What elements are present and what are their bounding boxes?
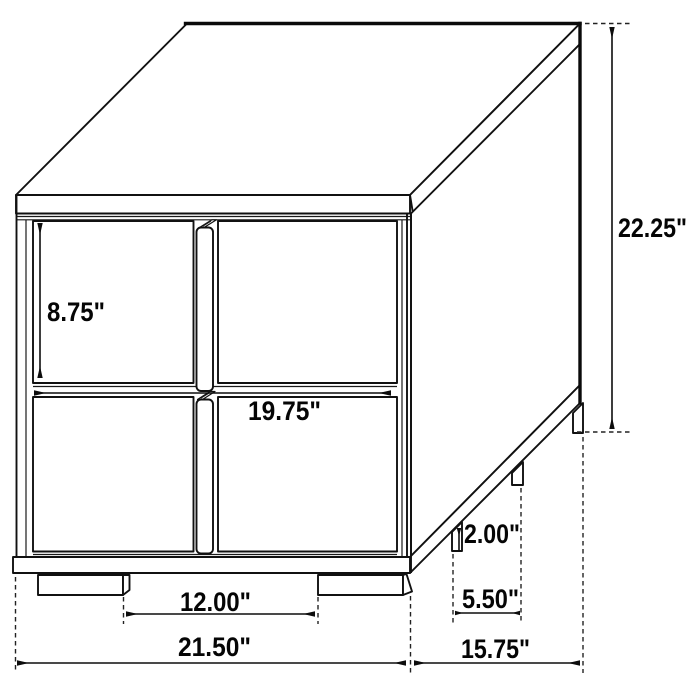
front-leg-right-side-face [403,574,412,595]
dim-label-overall-width: 21.50" [178,632,251,662]
top-slab-front-face [16,195,410,214]
handle-lower-bar [197,400,214,554]
dim-label-leg-height: 2.00" [464,519,520,549]
drawer-front-upper-right [218,221,397,383]
dim-label-front-leg-gap: 12.00" [180,587,251,617]
front-leg-left-side-face [123,575,130,595]
dimension-diagram: 8.75" 19.75" 22.25" 2.00" 5.50" 12.00" 2… [0,0,700,700]
dim-label-overall-height: 22.25" [618,213,687,243]
handle-upper-top-face [200,220,217,228]
dim-label-drawer-width: 19.75" [248,396,321,426]
front-leg-right [318,575,403,595]
dim-label-overall-depth: 15.75" [461,634,530,664]
handle-upper-bar [197,228,214,392]
front-base-rail [13,557,410,573]
dim-label-drawer-height: 8.75" [47,297,105,327]
front-leg-left [38,575,123,595]
dim-label-side-leg-gap: 5.50" [462,584,519,614]
nightstand-drawing: 8.75" 19.75" 22.25" 2.00" 5.50" 12.00" 2… [0,0,700,700]
drawer-front-lower-left [33,397,194,552]
